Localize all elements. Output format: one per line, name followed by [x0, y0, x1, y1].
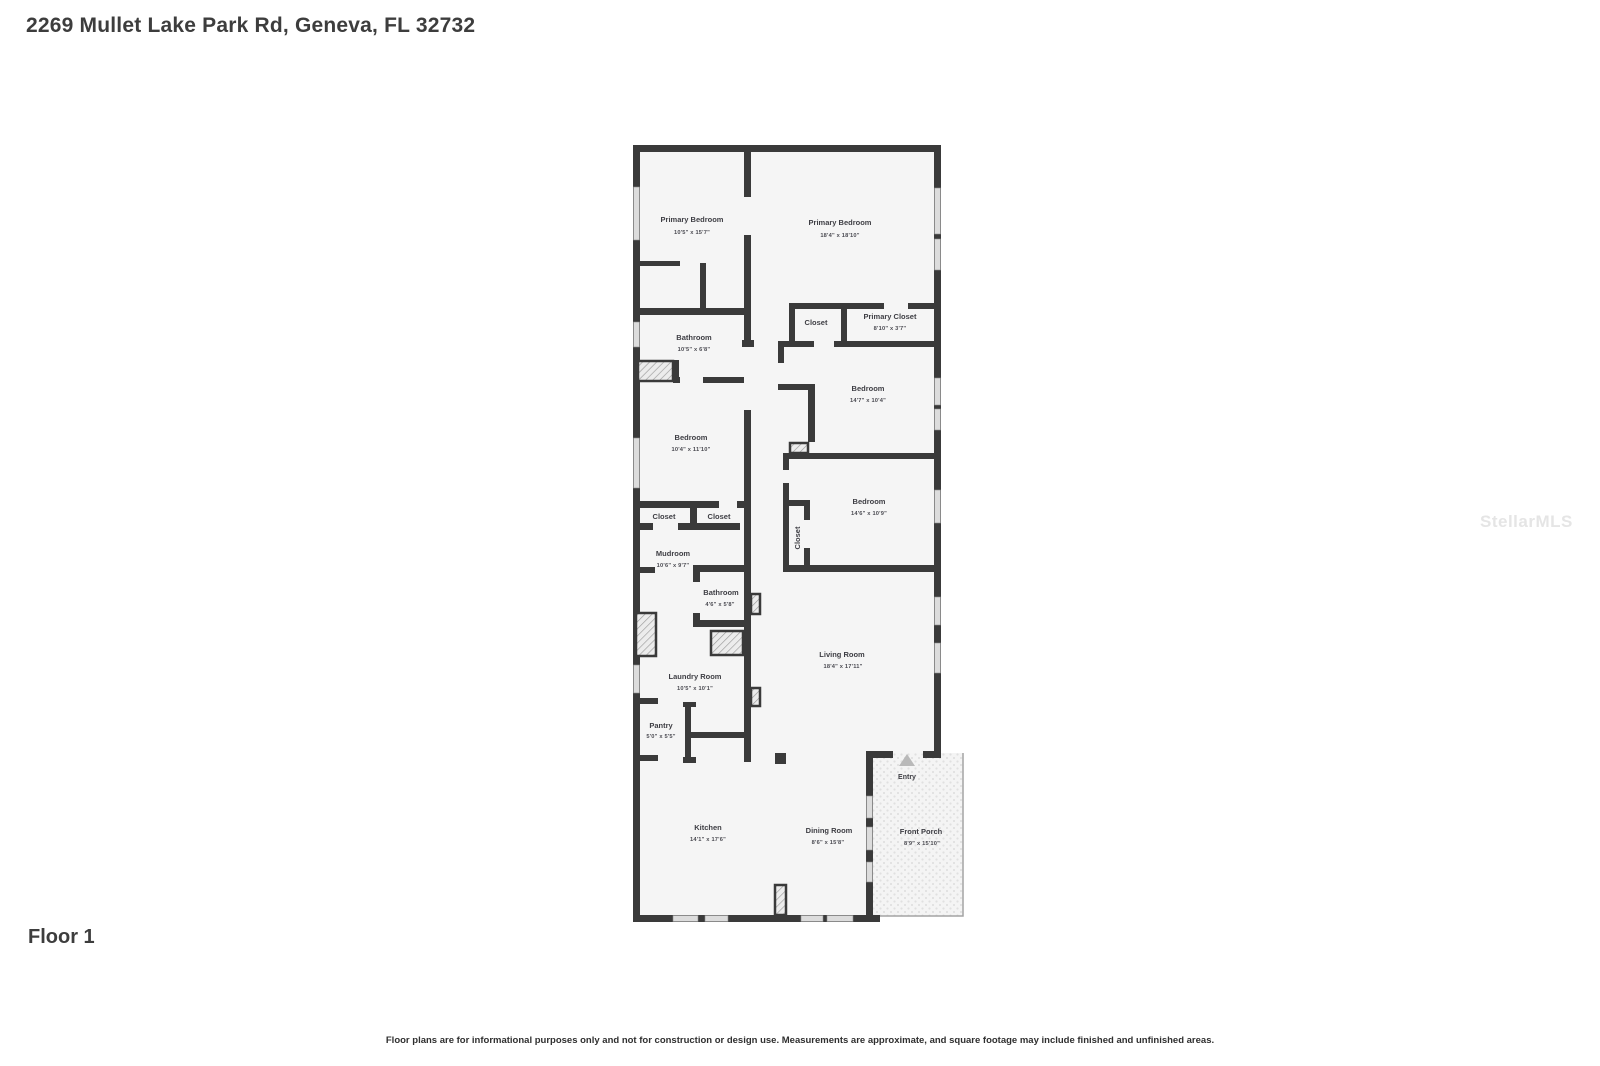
- svg-text:5'0" x 5'5": 5'0" x 5'5": [646, 734, 675, 740]
- door-fixture: [775, 885, 786, 915]
- svg-text:Closet: Closet: [708, 512, 731, 521]
- svg-text:Primary Closet: Primary Closet: [864, 312, 917, 321]
- svg-text:18'4" x 18'10": 18'4" x 18'10": [820, 233, 859, 239]
- svg-text:4'6" x 5'8": 4'6" x 5'8": [705, 602, 734, 608]
- svg-text:Closet: Closet: [653, 512, 676, 521]
- svg-text:10'5" x 6'8": 10'5" x 6'8": [678, 347, 711, 353]
- svg-text:Entry: Entry: [898, 774, 916, 781]
- svg-text:Bedroom: Bedroom: [853, 497, 886, 506]
- room-label-closet-right: Closet: [708, 512, 731, 521]
- entry-label: Entry: [898, 774, 916, 781]
- wall-fixture: [751, 594, 760, 614]
- svg-text:10'5" x 15'7": 10'5" x 15'7": [674, 230, 710, 236]
- svg-text:Bathroom: Bathroom: [676, 333, 712, 342]
- svg-text:14'6" x 10'9": 14'6" x 10'9": [851, 511, 887, 517]
- svg-text:Living Room: Living Room: [819, 650, 865, 659]
- floorplan-drawing: Primary Bedroom 10'5" x 15'7" Primary Be…: [0, 0, 1600, 1066]
- svg-text:Closet: Closet: [793, 526, 802, 549]
- floorplan-page: 2269 Mullet Lake Park Rd, Geneva, FL 327…: [0, 0, 1600, 1066]
- svg-text:8'10" x 3'7": 8'10" x 3'7": [874, 326, 907, 332]
- room-label-closet-vertical: Closet: [793, 526, 802, 549]
- wall-fixture: [751, 688, 760, 706]
- svg-text:8'6" x 15'8": 8'6" x 15'8": [812, 840, 845, 846]
- svg-text:Primary Bedroom: Primary Bedroom: [809, 218, 872, 227]
- room-label-closet-left: Closet: [653, 512, 676, 521]
- linen-shelf-fixture: [790, 443, 808, 453]
- svg-text:Front Porch: Front Porch: [900, 827, 943, 836]
- svg-text:Bathroom: Bathroom: [703, 588, 739, 597]
- svg-text:10'4" x 11'10": 10'4" x 11'10": [671, 447, 710, 453]
- room-label-closet-primary-hall: Closet: [805, 318, 828, 327]
- svg-text:Bedroom: Bedroom: [852, 384, 885, 393]
- svg-text:18'4" x 17'11": 18'4" x 17'11": [823, 664, 862, 670]
- svg-text:10'5" x 10'1": 10'5" x 10'1": [677, 686, 713, 692]
- floor-label: Floor 1: [28, 926, 95, 949]
- svg-text:Dining Room: Dining Room: [806, 826, 853, 835]
- svg-text:14'7" x 10'4": 14'7" x 10'4": [850, 398, 886, 404]
- svg-text:Mudroom: Mudroom: [656, 549, 690, 558]
- stellar-mls-watermark: StellarMLS: [1480, 512, 1573, 532]
- svg-text:Closet: Closet: [805, 318, 828, 327]
- washer-dryer-fixture: [711, 631, 743, 655]
- svg-text:Pantry: Pantry: [649, 721, 673, 730]
- svg-text:8'9" x 15'10": 8'9" x 15'10": [904, 841, 940, 847]
- svg-text:Bedroom: Bedroom: [675, 433, 708, 442]
- svg-text:Kitchen: Kitchen: [694, 823, 722, 832]
- svg-text:14'1" x 17'6": 14'1" x 17'6": [690, 837, 726, 843]
- svg-text:Primary Bedroom: Primary Bedroom: [661, 215, 724, 224]
- shower-fixture: [638, 361, 673, 381]
- disclaimer-text: Floor plans are for informational purpos…: [0, 1035, 1600, 1046]
- svg-text:10'6" x 9'7": 10'6" x 9'7": [657, 563, 690, 569]
- svg-text:Laundry Room: Laundry Room: [669, 672, 722, 681]
- utility-fixture: [636, 613, 656, 656]
